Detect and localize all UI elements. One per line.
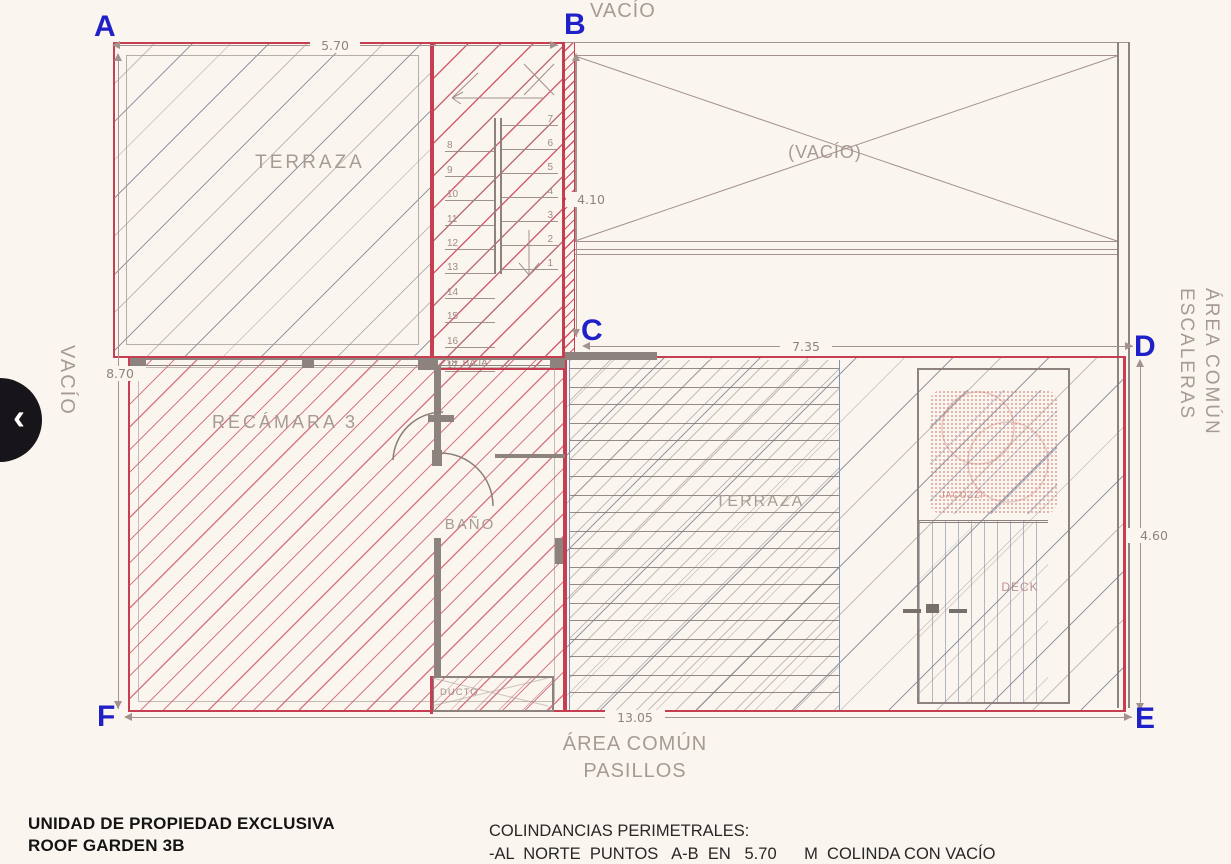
roof-terrace-area: JACUZZI bbox=[565, 356, 1126, 712]
dim-bottom-value: 13.05 bbox=[605, 710, 665, 725]
stair-tread-number: 9 bbox=[447, 166, 453, 176]
carousel-prev-button[interactable]: ‹ bbox=[0, 378, 42, 462]
area-comun-right-line2: ESCALERAS bbox=[1174, 288, 1199, 508]
stair-tread: 4 bbox=[501, 174, 558, 198]
terrace-plank-area bbox=[569, 360, 840, 710]
bath-wall-upper bbox=[434, 366, 441, 450]
void-inner-label: (VACÍO) bbox=[770, 142, 880, 163]
dim-arrow bbox=[572, 329, 580, 337]
dim-middle-value: 7.35 bbox=[780, 339, 832, 354]
corner-label-a: A bbox=[94, 12, 116, 42]
colindancias-item: -AL NORTE PUNTOS A-B EN 5.70 M COLINDA C… bbox=[489, 845, 995, 864]
area-comun-escaleras-label: ÁREA COMÚN ESCALERAS bbox=[1174, 288, 1224, 508]
area-comun-pasillos-label: ÁREA COMÚN PASILLOS bbox=[545, 731, 725, 785]
void-top-label: VACÍO bbox=[590, 0, 710, 23]
bath-wall-stub bbox=[432, 450, 442, 466]
corner-label-b: B bbox=[564, 10, 586, 40]
corner-label-f: F bbox=[97, 702, 115, 732]
jacuzzi: JACUZZI bbox=[930, 390, 1057, 514]
bath-wall-stub bbox=[428, 415, 454, 422]
wall-pier bbox=[302, 358, 314, 368]
void-top-boundary-line bbox=[565, 42, 1130, 43]
corner-label-e: E bbox=[1135, 704, 1155, 734]
bedroom-label: RECÁMARA 3 bbox=[195, 412, 375, 433]
chevron-left-icon: ‹ bbox=[13, 395, 25, 439]
deck-step-mark bbox=[903, 609, 921, 613]
bath-label: BAÑO bbox=[430, 516, 510, 533]
stair-tread: 11 bbox=[445, 201, 495, 225]
dim-top-value: 5.70 bbox=[310, 38, 360, 53]
bath-wall-lower bbox=[434, 538, 441, 678]
stair-tread-number: 15 bbox=[447, 312, 458, 322]
dim-line-middle bbox=[586, 346, 1133, 347]
deck-step-mark bbox=[949, 609, 967, 613]
stair-tread: 6 bbox=[501, 126, 558, 150]
stair-tread-number: 7 bbox=[547, 115, 553, 125]
dim-arrow bbox=[114, 53, 122, 61]
stair-tread: 7 bbox=[501, 102, 558, 126]
bedroom-unit-area: DUCTO bbox=[128, 356, 565, 712]
floor-plan-page: { "corners":{"a":"A","b":"B","c":"C","d"… bbox=[0, 0, 1231, 864]
deck-label: DECK bbox=[985, 580, 1055, 594]
jacuzzi-label: JACUZZI bbox=[940, 490, 984, 500]
dim-arrow bbox=[550, 41, 558, 49]
dim-left-value: 8.70 bbox=[94, 366, 146, 381]
terrace-lintel-beam bbox=[565, 352, 657, 360]
terrace-center-label: TERRAZA bbox=[695, 493, 825, 511]
stair-tread-number: 10 bbox=[447, 190, 458, 200]
duct-label: DUCTO bbox=[440, 687, 479, 698]
area-comun-bottom-line2: PASILLOS bbox=[545, 758, 725, 785]
stair-tread-number: 4 bbox=[547, 187, 553, 197]
stair-tread-number: 3 bbox=[547, 211, 553, 221]
terrace-upper-inner-wall-line bbox=[126, 55, 419, 345]
area-comun-right-line1: ÁREA COMÚN bbox=[1199, 288, 1224, 508]
terrace-upper-label: TERRAZA bbox=[235, 152, 385, 174]
unit-title-line1: UNIDAD DE PROPIEDAD EXCLUSIVA bbox=[28, 814, 335, 834]
stair-tread: 15 bbox=[445, 299, 495, 323]
duct-box: DUCTO bbox=[432, 676, 554, 712]
dim-arrow bbox=[572, 53, 580, 61]
dim-line-left bbox=[118, 57, 119, 709]
stair-tread: 2 bbox=[501, 222, 558, 246]
stair-tread: 10 bbox=[445, 177, 495, 201]
dim-stairwell-value: 4.10 bbox=[566, 192, 616, 207]
stair-tread-number: 6 bbox=[547, 139, 553, 149]
terrace-upper-area bbox=[113, 42, 432, 358]
stair-tread: 5 bbox=[501, 150, 558, 174]
corner-label-d: D bbox=[1134, 332, 1156, 362]
stair-treads-right: 7654321 bbox=[501, 102, 558, 270]
unit-east-red-boundary bbox=[1123, 356, 1125, 712]
stair-treads-left: 891011121314151617 bbox=[445, 128, 495, 372]
corner-label-c: C bbox=[581, 316, 603, 346]
stairwell-area: 891011121314151617 7654321 18 BAJA bbox=[432, 42, 565, 370]
dim-arrow bbox=[1124, 713, 1132, 721]
void-left-label: VACÍO bbox=[55, 345, 78, 485]
stair-tread-number: 1 bbox=[547, 259, 553, 269]
bedroom-north-wall bbox=[130, 358, 567, 366]
bath-wall-stub bbox=[555, 538, 563, 564]
bath-wall-horizontal bbox=[495, 454, 567, 458]
stair-tread: 13 bbox=[445, 250, 495, 274]
duct-red-edge bbox=[430, 676, 433, 714]
stair-tread-number: 12 bbox=[447, 239, 458, 249]
stair-tread-number: 8 bbox=[447, 141, 453, 151]
stair-tread: 1 bbox=[501, 246, 558, 270]
colindancias-title: COLINDANCIAS PERIMETRALES: bbox=[489, 822, 749, 841]
dim-arrow bbox=[1125, 342, 1133, 350]
stair-tread: 3 bbox=[501, 198, 558, 222]
stair-tread: 9 bbox=[445, 152, 495, 176]
stair-tread-number: 2 bbox=[547, 235, 553, 245]
stair-tread-number: 11 bbox=[447, 215, 457, 225]
stair-tread-number: 14 bbox=[447, 288, 458, 298]
deck-step-mark bbox=[926, 604, 939, 613]
stair-tread-number: 5 bbox=[547, 163, 553, 173]
stair-tread-number: 13 bbox=[447, 263, 458, 273]
stair-tread: 8 bbox=[445, 128, 495, 152]
stair-center-rail bbox=[494, 118, 502, 274]
stair-tread: 12 bbox=[445, 226, 495, 250]
stair-tread-number: 16 bbox=[447, 337, 458, 347]
void-double-line bbox=[575, 249, 1118, 255]
stair-tread: 16 bbox=[445, 323, 495, 347]
unit-title-line2: ROOF GARDEN 3B bbox=[28, 836, 185, 856]
dim-right-value: 4.60 bbox=[1128, 528, 1180, 543]
stair-tread: 14 bbox=[445, 274, 495, 298]
dim-arrow bbox=[124, 713, 132, 721]
area-comun-bottom-line1: ÁREA COMÚN bbox=[545, 731, 725, 758]
